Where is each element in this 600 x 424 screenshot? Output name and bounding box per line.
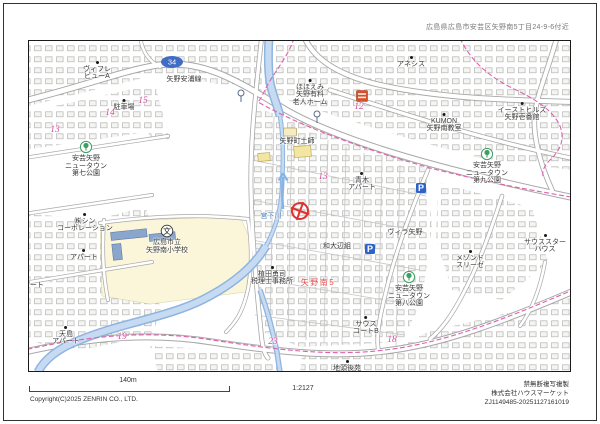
scale-bar: [29, 386, 230, 392]
building-dot-icon: [271, 266, 274, 269]
flow-arrow-icon: [277, 169, 289, 211]
map-label: 13: [50, 127, 60, 135]
map-label: 青木 アパート: [348, 172, 376, 192]
building-dot-icon: [364, 316, 367, 319]
school-icon: 文: [161, 225, 174, 238]
building-dot-icon: [544, 234, 547, 237]
svg-text:P: P: [418, 183, 424, 193]
building-dot-icon: [410, 56, 413, 59]
building-dot-icon: [83, 249, 86, 252]
map-label: 安芸矢野 ニュータウン 第八公園: [388, 285, 430, 308]
building-dot-icon: [65, 326, 68, 329]
map-label: 天島 アパート: [52, 326, 80, 346]
map-label: KUMON 矢野南教室: [427, 113, 462, 133]
map-label: 18: [387, 337, 397, 345]
badge-haji-icon: [283, 128, 297, 137]
map-ratio: 1:2127: [270, 385, 336, 392]
map-label: 宮下川: [261, 213, 282, 221]
svg-text:P: P: [367, 244, 373, 254]
building-dot-icon: [96, 61, 99, 64]
serial-number: ZJ1149485-20251127161019: [485, 398, 569, 407]
map-label: 13: [318, 174, 328, 182]
map-label: アパート: [28, 282, 44, 290]
map-label: 安芸矢野 ニュータウン 第七公園: [65, 155, 107, 178]
building-dot-icon: [521, 102, 524, 105]
reproduction-notice: 禁無断複写複製: [485, 380, 569, 389]
building-dot-icon: [308, 79, 311, 82]
map-label: サウススター ハウス: [524, 234, 566, 254]
map-label: 和大辺組: [323, 243, 351, 251]
map-label: 19: [117, 334, 127, 342]
building-dot-icon: [443, 113, 446, 116]
park-icon: [80, 141, 93, 154]
legal-block: 禁無断複写複製 株式会社ハウスマーケット ZJ1149485-202511271…: [485, 380, 569, 407]
map-label: アネシス: [397, 56, 425, 68]
address-header: 広島県広島市安芸区矢野南5丁目24-9-6付近: [426, 22, 569, 32]
map-label: 23: [268, 339, 278, 347]
school-grounds: [100, 216, 252, 304]
map-label: ほほえみ 矢野有料 老人ホーム: [293, 79, 328, 106]
map-label: 矢野安浦線: [167, 76, 202, 84]
company-name: 株式会社ハウスマーケット: [485, 389, 569, 398]
map-label: 広島市立 矢野南小学校: [146, 239, 188, 254]
map-label: ヴィラ矢野: [388, 229, 423, 237]
building-dot-icon: [123, 99, 126, 102]
map-label: アパート: [70, 249, 98, 261]
map-label: 矢野南5: [301, 279, 335, 287]
copyright-text: Copyright(C)2025 ZENRIN CO., LTD.: [30, 396, 138, 403]
busstop-icon: [312, 110, 322, 124]
map-label: 駐車場: [114, 99, 135, 111]
parking-icon: P: [416, 183, 427, 194]
scale-label: 140m: [28, 377, 228, 384]
svg-text:文: 文: [163, 226, 171, 236]
park-icon: [403, 271, 416, 284]
map-label: 矢野町土師: [280, 138, 315, 146]
map-label: ヴィフレ ビューA: [83, 61, 111, 81]
map-label: メゾンド スリーゼ: [456, 250, 484, 270]
map-label: 植田勇司 税理士事務所: [251, 266, 293, 286]
map-viewport[interactable]: 矢野安浦線ほほえみ 矢野有料 老人ホームアネシスイーストヒルズ 矢野壱番館KUM…: [28, 40, 571, 372]
parking-icon: P: [365, 244, 376, 255]
map-label: 安芸矢野 ニュータウン 第九公園: [466, 162, 508, 185]
map-label: ㈱シン コーポレーション: [57, 213, 113, 233]
map-label: イーストヒルズ 矢野壱番館: [498, 102, 547, 122]
map-label: 地頭後苑 デイサービスセンター: [312, 360, 382, 372]
map-label: 12: [354, 104, 364, 112]
svg-text:34: 34: [168, 58, 176, 67]
busstop-icon: [236, 89, 246, 103]
store-icon: [356, 90, 368, 102]
building-dot-icon: [346, 360, 349, 363]
building-dot-icon: [84, 213, 87, 216]
target-icon: [289, 200, 311, 222]
map-page: 広島県広島市安芸区矢野南5丁目24-9-6付近: [0, 0, 600, 424]
map-label: 14: [105, 110, 115, 118]
building-dot-icon: [469, 250, 472, 253]
route-badge-icon: 34: [159, 55, 185, 69]
building-dot-icon: [361, 172, 364, 175]
map-label: 15: [138, 98, 148, 106]
map-label: サウス コートB: [353, 316, 379, 336]
park-icon: [481, 148, 494, 161]
